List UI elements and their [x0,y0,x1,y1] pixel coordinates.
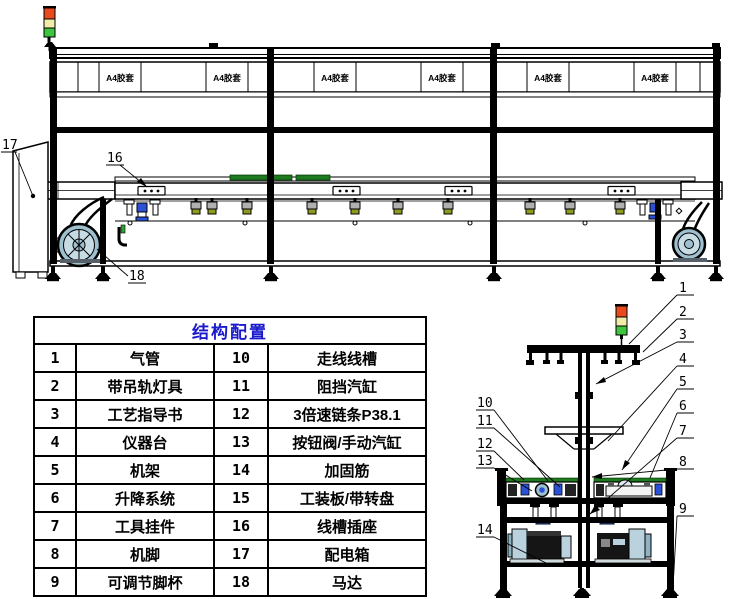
callout-1: 1 [679,281,687,296]
part-no: 18 [214,568,268,596]
a4-sleeve-label: A4胶套 [428,73,456,83]
gearmotor-left [508,529,571,563]
callout-18: 18 [129,269,145,284]
machine-feet [45,266,724,281]
part-name: 走线线槽 [268,344,426,372]
part-name: 阻挡汽缸 [268,372,426,400]
button-valves [191,198,625,214]
part-name: 马达 [268,568,426,596]
part-name: 工具挂件 [76,512,214,540]
part-name: 工艺指导书 [76,400,214,428]
part-name: 配电箱 [268,540,426,568]
stop-cylinder-left [124,200,160,221]
foot-icon [661,588,679,598]
callout-12: 12 [477,437,493,452]
part-no: 6 [34,484,76,512]
callout-3: 3 [679,328,687,343]
foot-icon [95,266,111,281]
callout-11: 11 [477,414,493,429]
callout-6: 6 [679,399,687,414]
callout-10: 10 [477,396,493,411]
foot-icon [263,266,279,281]
air-pipe-rail [115,221,695,225]
parts-table-title: 结构配置 [34,317,426,344]
part-no: 7 [34,512,76,540]
part-no: 10 [214,344,268,372]
part-no: 3 [34,400,76,428]
part-no: 13 [214,428,268,456]
a4-sleeve-label: A4胶套 [534,73,562,83]
callout-9: 9 [679,502,687,517]
callout-17: 17 [2,138,18,153]
part-name: 工装板/带转盘 [268,484,426,512]
signal-tower-icon [615,304,628,347]
part-name: 升降系统 [76,484,214,512]
center-column [575,353,593,588]
parts-table: 结构配置 1 气管 10 走线线槽 2 带吊轨灯具 11 阻挡汽缸 3 工艺指导… [33,316,425,597]
part-no: 1 [34,344,76,372]
callout-2: 2 [679,305,687,320]
document-panel-band: A4胶套 A4胶套 A4胶套 A4胶套 A4胶套 A4胶套 [50,62,720,97]
part-name: 气管 [76,344,214,372]
a4-sleeve-label: A4胶套 [213,73,241,83]
signal-tower-icon [43,6,56,51]
part-no: 14 [214,456,268,484]
part-no: 15 [214,484,268,512]
part-no: 11 [214,372,268,400]
part-no: 2 [34,372,76,400]
table-row: 7 工具挂件 16 线槽插座 [34,512,426,540]
table-row: 2 带吊轨灯具 11 阻挡汽缸 [34,372,426,400]
gearmotor-right [595,529,651,563]
part-name: 按钮阀/手动汽缸 [268,428,426,456]
bench-feet [494,588,679,598]
part-name: 机架 [76,456,214,484]
table-header-row: 结构配置 [34,317,426,344]
socket-strip-icon [138,187,165,196]
callout-14: 14 [477,523,493,538]
table-row: 9 可调节脚杯 18 马达 [34,568,426,596]
part-no: 4 [34,428,76,456]
side-section-view: 1 2 3 4 5 6 7 8 [476,281,694,598]
part-no: 16 [214,512,268,540]
table-row: 8 机脚 17 配电箱 [34,540,426,568]
callout-4: 4 [679,352,687,367]
socket-strip-icon [333,187,360,196]
callout-5: 5 [679,375,687,390]
overhead-rail [526,345,640,365]
part-name: 线槽插座 [268,512,426,540]
part-name: 可调节脚杯 [76,568,214,596]
part-no: 12 [214,400,268,428]
electrical-cabinet [13,142,48,278]
callout-7: 7 [679,424,687,439]
bottom-beam [50,261,720,266]
a4-sleeve-label: A4胶套 [321,73,349,83]
part-no: 5 [34,456,76,484]
part-no: 9 [34,568,76,596]
middle-rail [50,127,720,133]
callout-8: 8 [679,455,687,470]
part-name: 加固筋 [268,456,426,484]
part-no: 8 [34,540,76,568]
top-beam [50,43,720,58]
a4-sleeve-label: A4胶套 [106,73,134,83]
table-row: 3 工艺指导书 12 3倍速链条P38.1 [34,400,426,428]
table-row: 4 仪器台 13 按钮阀/手动汽缸 [34,428,426,456]
foot-icon [650,266,666,281]
a4-sleeve-label: A4胶套 [641,73,669,83]
part-no: 17 [214,540,268,568]
main-elevation-view: A4胶套 A4胶套 A4胶套 A4胶套 A4胶套 A4胶套 [1,6,724,284]
table-row: 5 机架 14 加固筋 [34,456,426,484]
socket-strip-icon [445,187,472,196]
part-name: 仪器台 [76,428,214,456]
table-row: 6 升降系统 15 工装板/带转盘 [34,484,426,512]
tool-hanger-icon [119,225,127,245]
callout-16: 16 [107,151,123,166]
part-name: 带吊轨灯具 [76,372,214,400]
foot-icon [573,588,591,598]
part-name: 机脚 [76,540,214,568]
foot-icon [708,266,724,281]
part-name: 3倍速链条P38.1 [268,400,426,428]
foot-icon [494,588,512,598]
socket-strip-icon [608,187,635,196]
table-row: 1 气管 10 走线线槽 [34,344,426,372]
foot-icon [486,266,502,281]
callout-13: 13 [477,454,493,469]
pallet-board [230,175,292,180]
pallet-board [296,175,330,180]
